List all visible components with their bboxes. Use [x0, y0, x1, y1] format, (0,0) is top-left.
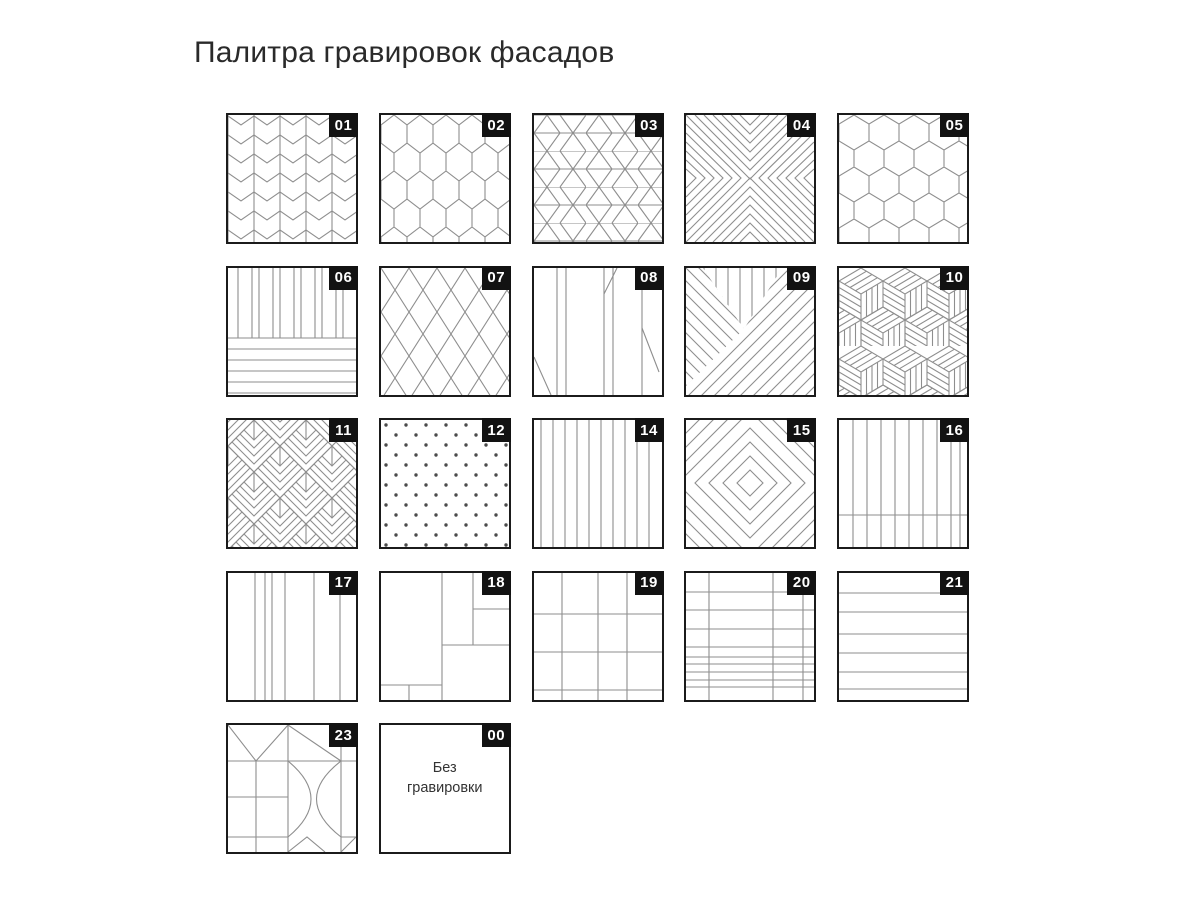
pattern-tile-05[interactable]: 05 [837, 113, 969, 244]
tile-number-badge: 04 [787, 113, 816, 137]
pattern-tile-14[interactable]: 14 [532, 418, 664, 549]
pattern-tile-01[interactable]: 01 [226, 113, 358, 244]
tile-number-badge: 16 [940, 418, 969, 442]
tile-number-badge: 07 [482, 266, 511, 290]
pattern-tile-16[interactable]: 16 [837, 418, 969, 549]
tile-number-badge: 23 [329, 723, 358, 747]
tile-number-badge: 09 [787, 266, 816, 290]
tile-number-badge: 14 [635, 418, 664, 442]
pattern-tile-10[interactable]: 10 [837, 266, 969, 397]
pattern-tile-09[interactable]: 09 [684, 266, 816, 397]
tile-number-badge: 15 [787, 418, 816, 442]
engraving-palette-grid: 01 02 03 04 [226, 113, 969, 854]
tile-number-badge: 03 [635, 113, 664, 137]
pattern-tile-20[interactable]: 20 [684, 571, 816, 702]
pattern-tile-19[interactable]: 19 [532, 571, 664, 702]
pattern-tile-18[interactable]: 18 [379, 571, 511, 702]
page-title: Палитра гравировок фасадов [194, 36, 614, 70]
tile-number-badge: 17 [329, 571, 358, 595]
tile-number-badge: 20 [787, 571, 816, 595]
tile-number-badge: 21 [940, 571, 969, 595]
tile-number-badge: 19 [635, 571, 664, 595]
tile-number-badge: 18 [482, 571, 511, 595]
tile-number-badge: 06 [329, 266, 358, 290]
pattern-tile-12[interactable]: 12 [379, 418, 511, 549]
tile-number-badge: 12 [482, 418, 511, 442]
pattern-tile-21[interactable]: 21 [837, 571, 969, 702]
tile-number-badge: 02 [482, 113, 511, 137]
tile-number-badge: 05 [940, 113, 969, 137]
pattern-tile-02[interactable]: 02 [379, 113, 511, 244]
pattern-tile-15[interactable]: 15 [684, 418, 816, 549]
tile-number-badge: 00 [482, 723, 511, 747]
pattern-tile-00[interactable]: Без гравировки 00 [379, 723, 511, 854]
pattern-tile-08[interactable]: 08 [532, 266, 664, 397]
pattern-tile-23[interactable]: 23 [226, 723, 358, 854]
tile-number-badge: 01 [329, 113, 358, 137]
tile-number-badge: 11 [329, 418, 358, 442]
tile-number-badge: 10 [940, 266, 969, 290]
pattern-tile-03[interactable]: 03 [532, 113, 664, 244]
pattern-tile-04[interactable]: 04 [684, 113, 816, 244]
pattern-tile-07[interactable]: 07 [379, 266, 511, 397]
pattern-tile-17[interactable]: 17 [226, 571, 358, 702]
tile-number-badge: 08 [635, 266, 664, 290]
pattern-tile-06[interactable]: 06 [226, 266, 358, 397]
pattern-tile-11[interactable]: 11 [226, 418, 358, 549]
